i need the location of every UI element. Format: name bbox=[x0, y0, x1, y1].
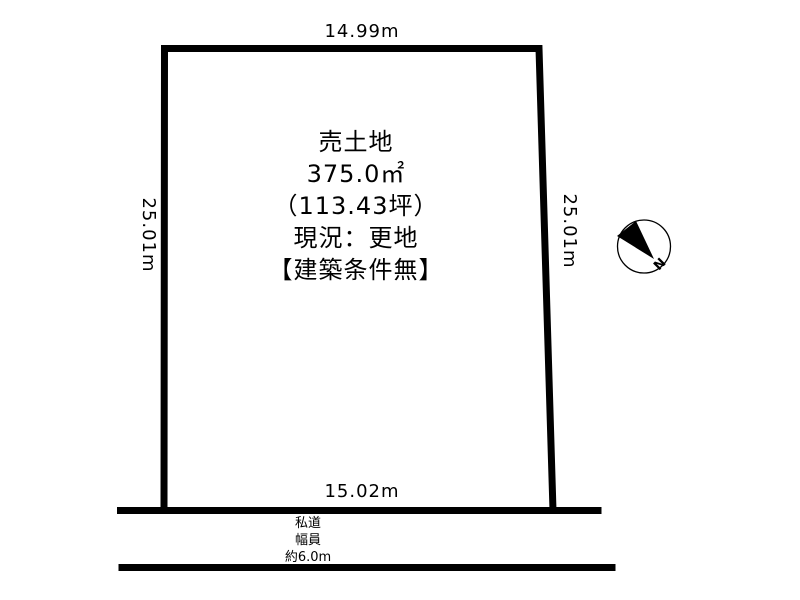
land-plot-diagram: N 14.99m 25.01m 25.01m 15.02m 売土地 375.0㎡… bbox=[0, 0, 800, 600]
road-width-label: 幅員 bbox=[285, 532, 331, 549]
road-width-value: 約6.0m bbox=[285, 549, 331, 566]
parcel-current-state: 現況：更地 bbox=[269, 222, 444, 254]
parcel-area-tsubo: （113.43坪） bbox=[269, 190, 444, 222]
plot-drawing: N bbox=[0, 0, 800, 600]
parcel-title: 売土地 bbox=[269, 126, 444, 158]
dimension-bottom: 15.02m bbox=[324, 483, 399, 501]
compass-icon: N bbox=[617, 220, 671, 273]
dimension-right: 25.01m bbox=[560, 193, 578, 268]
dimension-top: 14.99m bbox=[324, 23, 399, 41]
parcel-description: 売土地 375.0㎡ （113.43坪） 現況：更地 【建築条件無】 bbox=[269, 126, 444, 286]
parcel-area-sqm: 375.0㎡ bbox=[269, 158, 444, 190]
parcel-building-condition: 【建築条件無】 bbox=[269, 254, 444, 286]
road-annotation: 私道 幅員 約6.0m bbox=[285, 515, 331, 566]
road-type: 私道 bbox=[285, 515, 331, 532]
dimension-left: 25.01m bbox=[139, 197, 157, 272]
